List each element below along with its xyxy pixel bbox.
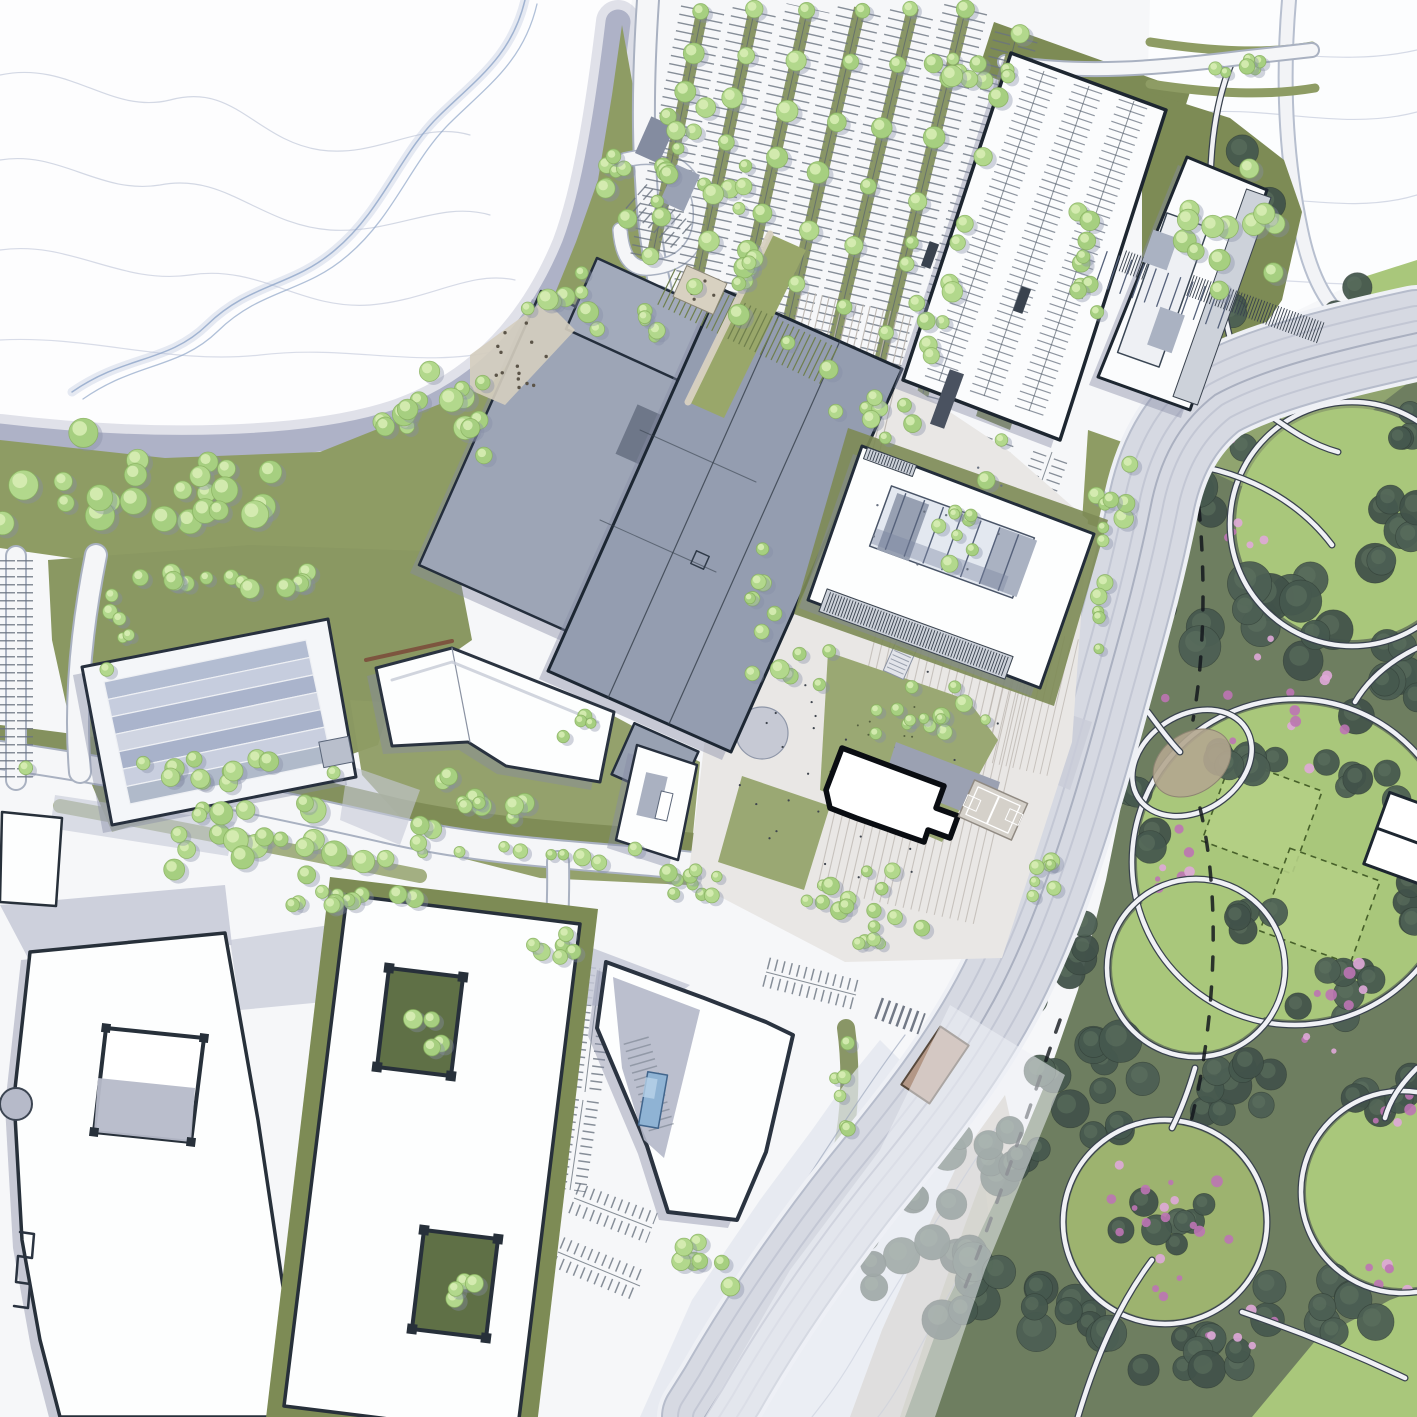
courtyard-corner-notch [186, 1137, 196, 1147]
courtyard-corner-notch [89, 1127, 99, 1137]
courtyard-corner-notch [492, 1233, 503, 1244]
site-plan-svg [0, 0, 1417, 1417]
courtyard-corner-notch [101, 1023, 111, 1033]
west-edge-building [0, 812, 62, 906]
courtyard-corner-notch [480, 1332, 491, 1343]
courtyard-corner-notch [383, 962, 394, 973]
courtyard-corner-notch [406, 1323, 417, 1334]
courtyard-corner-notch [371, 1061, 382, 1072]
courtyard-corner-notch [445, 1070, 456, 1081]
building-a-drum [0, 1088, 32, 1120]
courtyard-corner-notch [457, 971, 468, 982]
courtyard-corner-notch [199, 1033, 209, 1043]
site-plan [0, 0, 1417, 1417]
courtyard-corner-notch [418, 1224, 429, 1235]
pool-entrance [319, 736, 353, 767]
building-a-courtyard-gray [94, 1078, 195, 1142]
